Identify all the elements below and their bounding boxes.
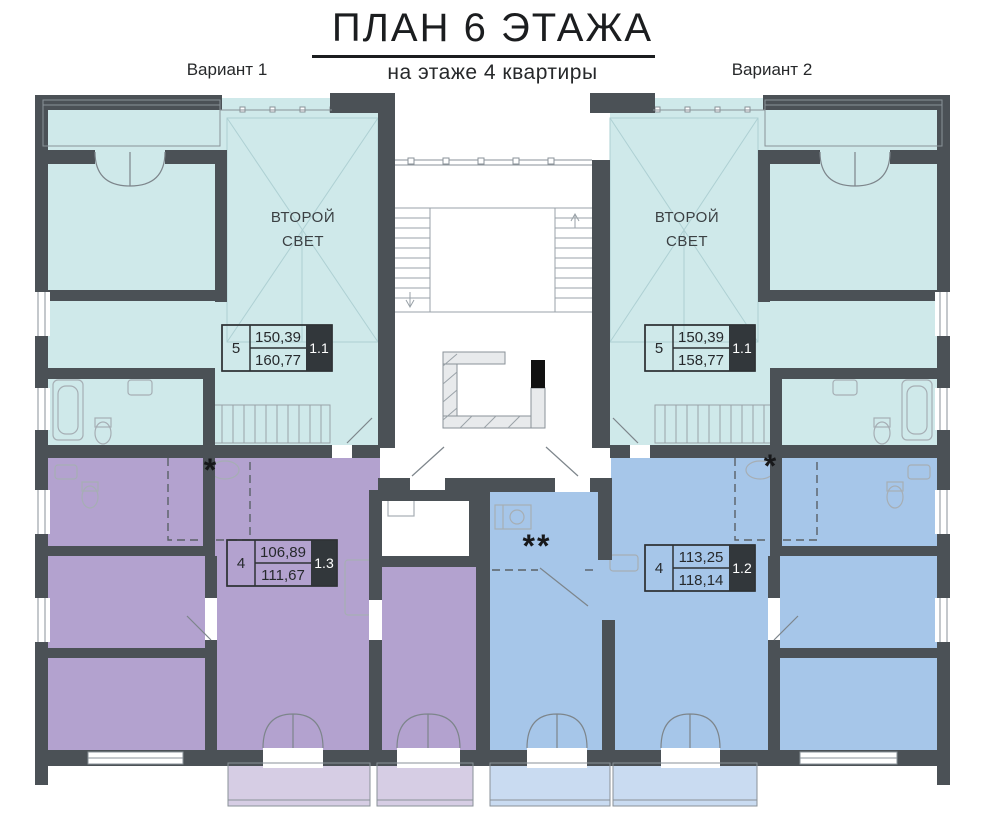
area-main-left-bottom: 106,89	[260, 544, 306, 561]
title-underline	[312, 55, 655, 58]
unit-left-top: 1.1	[309, 340, 329, 356]
rooms-right-bottom: 4	[655, 560, 663, 577]
unit-left-bottom: 1.3	[314, 555, 334, 571]
second-light-right-line1: ВТОРОЙ	[655, 208, 719, 226]
apartment-left-bottom-ext	[382, 558, 480, 760]
page-title: ПЛАН 6 ЭТАЖА	[0, 6, 985, 51]
star-marker-right: *	[764, 448, 778, 484]
variant-2-label: Вариант 2	[687, 60, 857, 80]
second-light-right-line2: СВЕТ	[666, 233, 708, 250]
area-total-right-top: 158,77	[678, 352, 724, 369]
area-main-right-bottom: 113,25	[679, 549, 724, 566]
second-light-left-line1: ВТОРОЙ	[271, 208, 335, 226]
area-total-left-top: 160,77	[255, 352, 301, 369]
variant-1-label: Вариант 1	[142, 60, 312, 80]
rooms-right-top: 5	[655, 340, 663, 357]
floor-plan-svg: ВТОРОЙ СВЕТ ВТОРОЙ СВЕТ * * ** 5 150,39 …	[0, 0, 985, 833]
elevator-door-marker	[531, 360, 545, 388]
area-total-right-bottom: 118,14	[679, 572, 724, 589]
entry-hall-region	[382, 492, 480, 558]
unit-right-bottom: 1.2	[732, 560, 752, 576]
unit-right-top: 1.1	[732, 340, 752, 356]
rooms-left-bottom: 4	[237, 555, 245, 572]
double-star-marker: **	[523, 528, 552, 564]
stairwell-region	[395, 110, 592, 430]
area-total-left-bottom: 111,67	[261, 567, 305, 584]
floor-plan-page: ПЛАН 6 ЭТАЖА на этаже 4 квартиры Вариант…	[0, 0, 985, 833]
area-main-right-top: 150,39	[678, 329, 724, 346]
star-marker-left: *	[204, 452, 218, 488]
area-main-left-top: 150,39	[255, 329, 301, 346]
second-light-left-line2: СВЕТ	[282, 233, 324, 250]
rooms-left-top: 5	[232, 340, 240, 357]
